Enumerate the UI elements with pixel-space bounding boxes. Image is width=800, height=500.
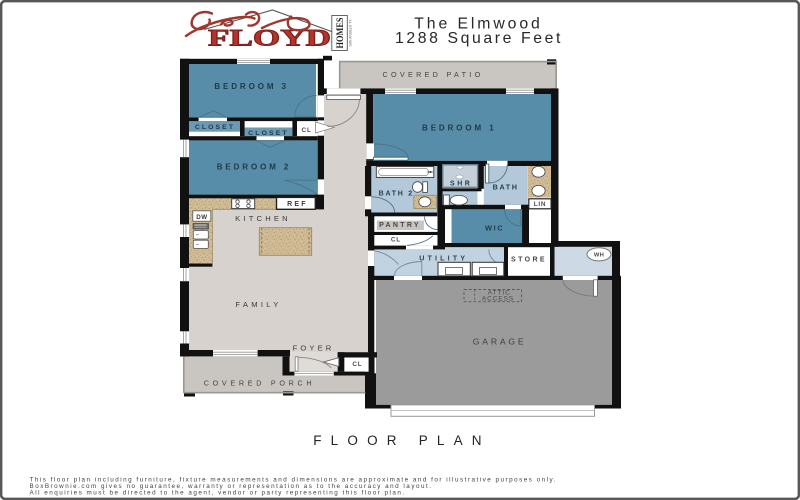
svg-text:PANTRY: PANTRY xyxy=(379,222,421,229)
svg-text:REF: REF xyxy=(287,201,308,208)
svg-text:COVERED PATIO: COVERED PATIO xyxy=(383,70,484,79)
svg-text:KITCHEN: KITCHEN xyxy=(235,214,291,223)
svg-text:FLOOR PLAN: FLOOR PLAN xyxy=(313,433,491,448)
svg-text:SHR: SHR xyxy=(450,181,472,188)
svg-text:WIC: WIC xyxy=(485,223,504,232)
svg-text:BEDROOM 1: BEDROOM 1 xyxy=(422,124,497,133)
svg-text:HOMES: HOMES xyxy=(335,18,345,49)
svg-text:1288 Square Feet: 1288 Square Feet xyxy=(395,30,563,47)
svg-text:BATH 2: BATH 2 xyxy=(379,191,414,198)
svg-text:COVERED PORCH: COVERED PORCH xyxy=(204,379,316,388)
svg-text:CLOSET: CLOSET xyxy=(248,130,289,137)
svg-text:CL: CL xyxy=(391,237,401,244)
svg-text:WH: WH xyxy=(594,253,604,259)
svg-text:GARAGE: GARAGE xyxy=(473,337,527,347)
svg-text:BEDROOM 2: BEDROOM 2 xyxy=(217,163,292,172)
svg-text:STORE: STORE xyxy=(511,257,547,264)
svg-text:SAN ANGELO TX: SAN ANGELO TX xyxy=(349,19,353,47)
svg-text:All enquiries must be directed: All enquiries must be directed to the ag… xyxy=(30,489,406,496)
svg-text:BATH: BATH xyxy=(493,182,519,191)
svg-text:CL: CL xyxy=(302,127,312,134)
svg-text:FOYER: FOYER xyxy=(293,344,335,353)
svg-text:FAMILY: FAMILY xyxy=(235,300,281,309)
svg-text:UTILITY: UTILITY xyxy=(419,253,468,262)
svg-text:BEDROOM 3: BEDROOM 3 xyxy=(214,82,289,91)
svg-text:CLOSET: CLOSET xyxy=(195,124,235,131)
svg-text:LIN: LIN xyxy=(534,201,546,208)
svg-text:DW: DW xyxy=(196,214,208,221)
svg-text:FLOYD: FLOYD xyxy=(208,25,331,50)
svg-text:CL: CL xyxy=(352,361,362,368)
svg-text:ACCESS: ACCESS xyxy=(482,296,514,303)
